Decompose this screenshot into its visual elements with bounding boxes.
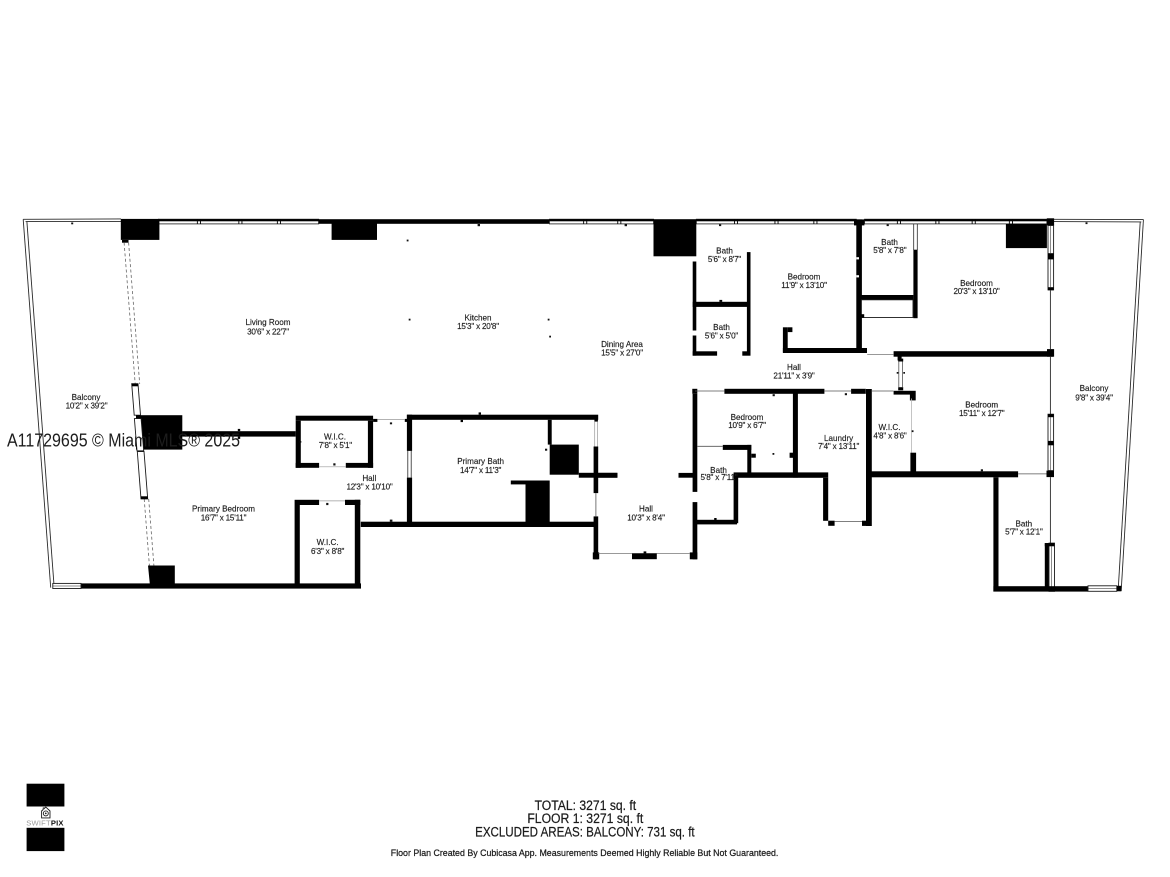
svg-text:Floor Plan Created By Cubicasa: Floor Plan Created By Cubicasa App. Meas… [391, 848, 779, 858]
svg-text:15'3" x 20'8": 15'3" x 20'8" [457, 322, 499, 331]
svg-text:15'5" x 27'0": 15'5" x 27'0" [601, 349, 643, 358]
svg-text:W.I.C.: W.I.C. [317, 538, 339, 547]
svg-text:15'11" x 12'7": 15'11" x 12'7" [959, 409, 1005, 418]
svg-text:9'8" x 39'4": 9'8" x 39'4" [1075, 394, 1113, 403]
svg-text:5'8" x 7'8": 5'8" x 7'8" [873, 246, 907, 255]
svg-text:5'6" x 5'0": 5'6" x 5'0" [705, 331, 739, 340]
svg-text:14'7" x 11'3": 14'7" x 11'3" [460, 466, 502, 475]
svg-text:Primary Bath: Primary Bath [457, 457, 504, 466]
svg-text:4'8" x 8'6": 4'8" x 8'6" [873, 432, 907, 441]
svg-text:11'9" x 13'10": 11'9" x 13'10" [781, 281, 827, 290]
svg-text:A11729695 © Miami MLS® 2025: A11729695 © Miami MLS® 2025 [7, 430, 240, 450]
svg-text:Hall: Hall [639, 505, 653, 514]
svg-text:Primary Bedroom: Primary Bedroom [192, 505, 255, 514]
svg-text:Balcony: Balcony [1080, 384, 1110, 393]
svg-text:5'7" x 12'1": 5'7" x 12'1" [1005, 528, 1043, 537]
svg-text:7'8" x 5'1": 7'8" x 5'1" [319, 441, 353, 450]
svg-text:EXCLUDED AREAS: BALCONY: 731 s: EXCLUDED AREAS: BALCONY: 731 sq. ft [475, 825, 695, 841]
svg-text:10'3" x 8'4": 10'3" x 8'4" [627, 513, 665, 522]
svg-text:Dining Area: Dining Area [601, 340, 643, 349]
svg-text:Living Room: Living Room [246, 318, 291, 327]
svg-text:16'7" x 15'11": 16'7" x 15'11" [201, 513, 247, 522]
svg-text:6'3" x 8'8": 6'3" x 8'8" [311, 547, 345, 556]
svg-text:7'4" x 13'11": 7'4" x 13'11" [818, 442, 860, 451]
svg-text:5'6" x 8'7": 5'6" x 8'7" [708, 255, 742, 264]
svg-text:20'3" x 13'10": 20'3" x 13'10" [953, 287, 999, 296]
svg-text:12'3" x 10'10": 12'3" x 10'10" [346, 482, 392, 491]
svg-text:30'6" x 22'7": 30'6" x 22'7" [247, 327, 289, 336]
svg-text:10'9" x 6'7": 10'9" x 6'7" [728, 421, 766, 430]
svg-text:21'11" x 3'9": 21'11" x 3'9" [773, 372, 815, 381]
svg-text:10'2" x 39'2": 10'2" x 39'2" [66, 401, 108, 410]
svg-text:SWIFTPIX: SWIFTPIX [26, 818, 63, 827]
svg-text:5'8" x 7'11": 5'8" x 7'11" [701, 473, 738, 482]
